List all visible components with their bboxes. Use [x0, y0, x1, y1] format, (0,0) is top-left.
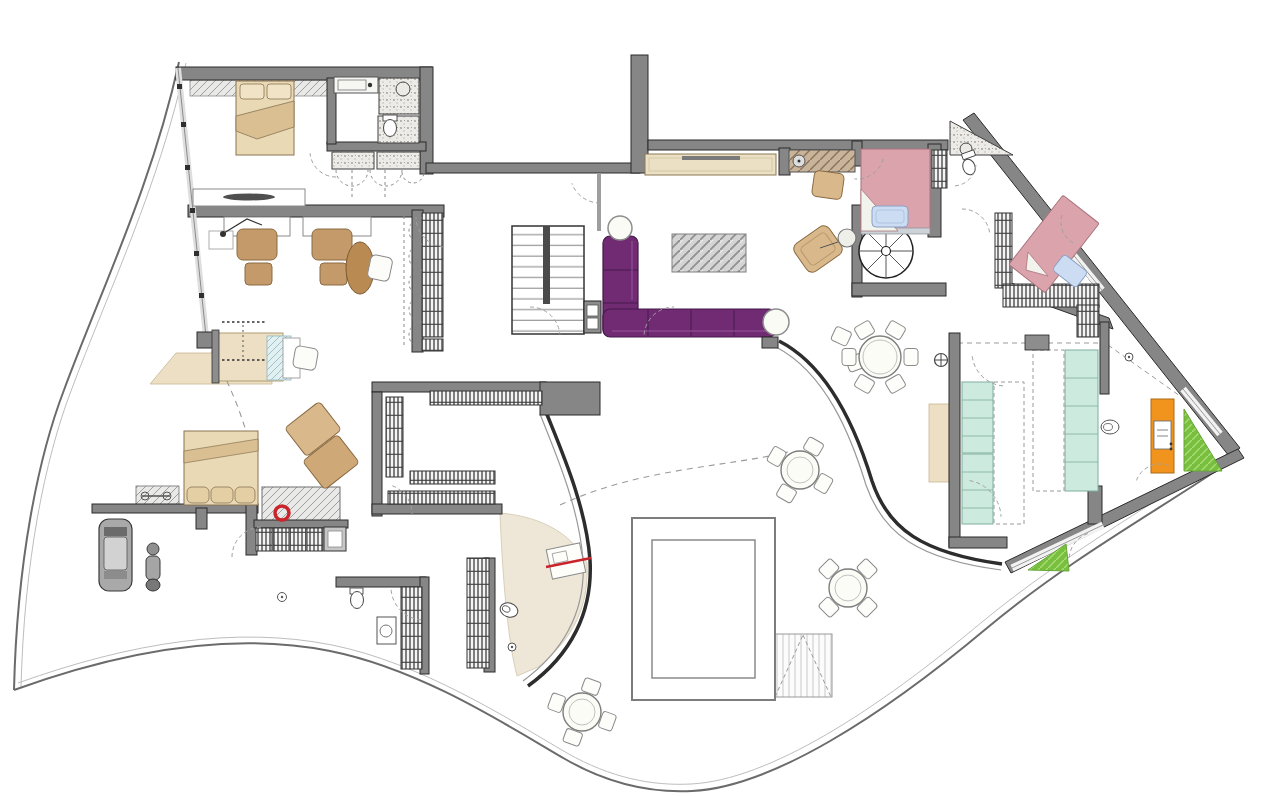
- toilet-topleft-bowl: [384, 120, 397, 137]
- wall-closet-bottom: [372, 504, 502, 514]
- armchair: [791, 223, 845, 275]
- stair-rail: [543, 226, 550, 304]
- patio-table: [547, 677, 617, 747]
- survey-marker-dot: [1128, 356, 1130, 358]
- wall-wing-bottom: [949, 537, 1007, 548]
- shower-drain: [396, 82, 410, 96]
- sofa-horizontal-arm: [603, 309, 776, 337]
- floor-plan-layers: [14, 55, 1244, 791]
- glass-mullion: [185, 165, 190, 170]
- glass-end-block: [197, 332, 214, 348]
- work-table-chair: [292, 345, 318, 371]
- car-rear-window: [104, 571, 127, 579]
- terrace-dashed-path: [560, 452, 788, 505]
- wall-wing-left: [949, 333, 960, 547]
- wardrobe-shelving-foot: [422, 339, 443, 351]
- wing-bed-footprint: [994, 382, 1024, 524]
- wall-office-top: [188, 205, 444, 217]
- office-oval-chair: [367, 254, 394, 282]
- wall-sofa-stub: [762, 337, 778, 348]
- site-boundary-left-outer: [14, 62, 179, 690]
- wall-living-stub: [779, 148, 790, 175]
- wall-corridor-top: [426, 163, 640, 173]
- floor-plan-page: [0, 0, 1280, 797]
- closetU-shelf-top: [430, 391, 542, 405]
- patio-table: [818, 558, 878, 618]
- dining-table-chair: [904, 349, 918, 366]
- floor-drain-dot: [511, 646, 513, 648]
- scooter-handlebar: [147, 543, 159, 555]
- door-arc: [972, 355, 1003, 386]
- orange-cabinet-knob: [1170, 448, 1173, 451]
- scooter-body: [146, 556, 160, 580]
- living-rug: [672, 234, 746, 272]
- wing-wardrobe-right: [1077, 305, 1099, 337]
- side-table-round: [608, 216, 632, 240]
- bedroom1-chair: [811, 170, 844, 200]
- hall-floor-wedge: [500, 513, 587, 676]
- wing-gray-cabinet: [1025, 335, 1049, 350]
- wicker-chair: [830, 326, 852, 347]
- master-pillow: [240, 84, 264, 99]
- bath-vanity-tap: [368, 83, 372, 87]
- wall-wing-inner-2: [1088, 486, 1102, 524]
- bedroom1-desk-lamp-dot: [798, 160, 801, 163]
- pool-inner: [652, 540, 755, 678]
- desk-lamp-base: [220, 231, 226, 237]
- wall-bath2-top: [336, 577, 426, 587]
- hatch-divider-bath: [932, 150, 947, 188]
- wall-closet-left: [372, 392, 382, 516]
- door-arc: [962, 209, 990, 235]
- glass-mullion: [190, 208, 195, 213]
- glass-mullion: [177, 84, 182, 89]
- closetU-shelf-bottom1: [410, 471, 495, 484]
- office-chair: [312, 229, 352, 260]
- orange-cabinet-knob: [1170, 443, 1173, 446]
- stair-cabinet-door: [587, 305, 598, 316]
- bedroom3-pillow: [235, 487, 255, 503]
- glass-mullion: [181, 122, 186, 127]
- master-tv: [223, 194, 275, 201]
- bath-shelf-b: [467, 558, 489, 668]
- wall-wardrobe-right: [412, 210, 423, 352]
- bedroom3-pillow: [187, 487, 209, 503]
- floor-drain-dot: [281, 596, 283, 598]
- orange-cabinet-desk: [1154, 421, 1171, 449]
- wardrobe-bedroom2: [995, 213, 1012, 288]
- glass-mullion: [199, 293, 204, 298]
- wing-bed: [1065, 350, 1098, 491]
- stair-cabinet-door: [587, 318, 598, 329]
- kitchen-cabinet: [273, 528, 289, 551]
- wall-spiral-bottom: [852, 283, 946, 296]
- floor-lamp: [838, 229, 856, 247]
- wing-bed: [962, 382, 993, 453]
- hanging-clothes-arc: [370, 170, 402, 186]
- dining-table-top: [859, 336, 901, 378]
- dining-table: [842, 320, 918, 394]
- scooter-wheel: [146, 579, 160, 591]
- wing-wardrobe-top: [1003, 284, 1099, 307]
- bedroom3-pillow: [211, 487, 233, 503]
- bedroom2-bed: [1009, 195, 1099, 293]
- spiral-stair-post: [882, 247, 891, 256]
- hall-divider-line: [597, 173, 601, 231]
- car-roof: [104, 537, 127, 570]
- kitchen-appliance-door: [328, 531, 342, 547]
- work-table-endpanel: [212, 330, 219, 383]
- door-arc: [572, 183, 600, 203]
- floor-plan-svg: [0, 0, 1280, 797]
- office-stool: [245, 263, 272, 285]
- dining-table-chair: [842, 349, 856, 366]
- closet-block-2: [377, 152, 420, 169]
- kitchen-cabinet: [256, 528, 272, 551]
- wall-bedroom3-right: [246, 504, 257, 555]
- closetU-shelf-bottom2: [388, 491, 495, 504]
- side-table-round: [763, 309, 789, 335]
- wardrobe-shelving-tall: [422, 213, 443, 337]
- kitchen-cabinet: [290, 528, 306, 551]
- car-windshield: [104, 527, 127, 536]
- bedroom1-pillow: [872, 206, 908, 227]
- closet-block-1: [332, 152, 374, 169]
- pergola-deck: [775, 634, 832, 697]
- master-pillow: [267, 84, 291, 99]
- office-stool: [320, 263, 347, 285]
- kitchen-counter-rug: [262, 487, 340, 521]
- wing-bed: [962, 454, 993, 524]
- kitchen-cabinet: [307, 528, 323, 551]
- sideboard-tv: [682, 156, 740, 160]
- wall-bath-right: [420, 67, 433, 174]
- wall-bedroom3-stub: [196, 508, 207, 529]
- office-chair: [237, 229, 277, 260]
- wing-bed-footprint: [1033, 350, 1064, 491]
- wall-closet-corner: [540, 382, 600, 415]
- glass-mullion: [194, 251, 199, 256]
- closetU-shelf-left: [386, 397, 403, 477]
- toilet-bath2-bowl: [351, 592, 364, 609]
- bath-shelf-a: [401, 587, 422, 669]
- wall-wing-inner-1: [1100, 322, 1109, 394]
- patio-table: [766, 436, 833, 503]
